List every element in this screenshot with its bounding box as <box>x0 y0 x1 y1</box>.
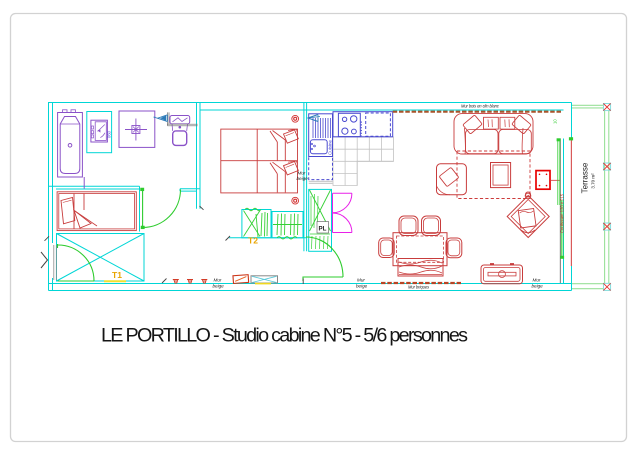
svg-text:Mur: Mur <box>214 278 222 283</box>
svg-text:Terrasse: Terrasse <box>581 162 590 193</box>
svg-text:3.70 m²: 3.70 m² <box>591 173 596 189</box>
svg-text:LE PORTILLO - Studio cabine N°: LE PORTILLO - Studio cabine N°5 - 5/6 pe… <box>101 325 468 347</box>
svg-text:Coulissant 120 x 215: Coulissant 120 x 215 <box>560 193 565 233</box>
svg-text:beige: beige <box>356 284 368 289</box>
svg-text:beige: beige <box>297 176 309 181</box>
svg-text:beige: beige <box>213 284 225 289</box>
svg-text:beige: beige <box>532 284 544 289</box>
svg-text:060: 060 <box>106 130 111 138</box>
svg-text:Mur bois en clin blanc: Mur bois en clin blanc <box>461 104 499 109</box>
svg-text:T2: T2 <box>248 236 258 246</box>
svg-text:Mur: Mur <box>357 278 365 283</box>
svg-text:Mur briques: Mur briques <box>408 285 429 290</box>
svg-text:Mur: Mur <box>298 171 306 176</box>
svg-text:T1: T1 <box>112 270 122 280</box>
svg-text:PL: PL <box>319 226 327 233</box>
svg-text:Cuisine: Cuisine <box>328 139 333 155</box>
svg-text:10: 10 <box>553 119 558 124</box>
svg-text:Mur: Mur <box>533 278 541 283</box>
